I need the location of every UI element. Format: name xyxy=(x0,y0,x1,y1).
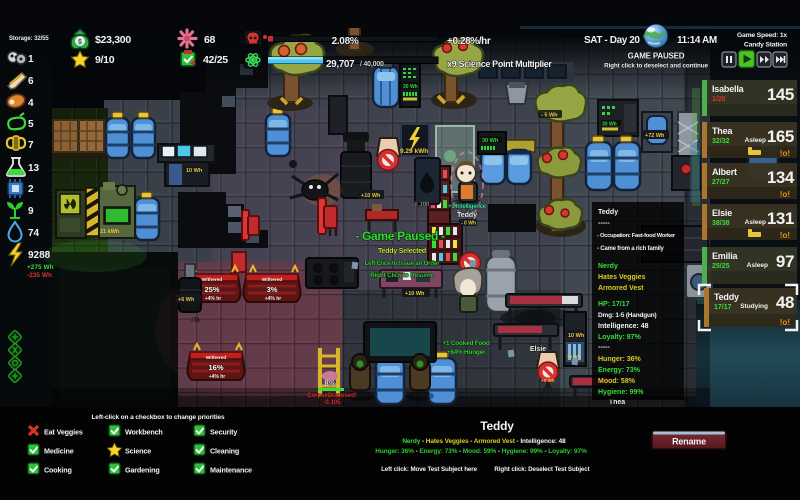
svg-text:HP: 17/17: HP: 17/17 xyxy=(598,301,630,308)
svg-text:Energy: 73%: Energy: 73% xyxy=(598,367,641,374)
svg-text:68: 68 xyxy=(204,34,216,46)
svg-text:32/32: 32/32 xyxy=(712,138,730,145)
svg-text:10 Wh: 10 Wh xyxy=(568,333,585,339)
svg-text:Hygiene: 99%: Hygiene: 99% xyxy=(598,389,644,396)
svg-text:134: 134 xyxy=(767,168,795,187)
svg-text:Hunger: 36%: Hunger: 36% xyxy=(598,356,642,363)
svg-text:Cleaning: Cleaning xyxy=(210,447,239,456)
svg-text:+10 Wh: +10 Wh xyxy=(361,193,381,199)
svg-text:-----: ----- xyxy=(598,344,610,351)
svg-text:42/25: 42/25 xyxy=(203,54,228,66)
svg-text:Teddy: Teddy xyxy=(457,212,477,219)
svg-text:Right Click to Resume: Right Click to Resume xyxy=(370,272,434,279)
svg-text:/ 40,000: / 40,000 xyxy=(360,61,384,68)
svg-text:-0.105: -0.105 xyxy=(323,400,341,406)
svg-text:9: 9 xyxy=(28,206,34,217)
svg-text:Emilia: Emilia xyxy=(712,251,739,261)
svg-text:- 5 Wh: - 5 Wh xyxy=(541,113,558,119)
svg-text:Teddy: Teddy xyxy=(714,292,739,302)
svg-text:1: 1 xyxy=(28,54,34,65)
svg-text:Left Click to Issue an Order: Left Click to Issue an Order xyxy=(365,260,441,267)
svg-text:+72 Wh: +72 Wh xyxy=(645,133,665,139)
svg-text:Studying: Studying xyxy=(740,303,768,310)
svg-text:- Occupation: Fast-food Worker: - Occupation: Fast-food Worker xyxy=(597,233,676,239)
svg-text:25%: 25% xyxy=(204,285,219,294)
svg-text:165: 165 xyxy=(767,127,794,146)
svg-text:30 Wh: 30 Wh xyxy=(403,84,418,90)
svg-text:Right click: Deselect Test Sub: Right click: Deselect Test Subject xyxy=(494,466,589,473)
svg-text:27/27: 27/27 xyxy=(712,179,730,186)
svg-text:- 0 Wh: - 0 Wh xyxy=(461,221,476,227)
svg-text:30 Wh: 30 Wh xyxy=(602,122,617,128)
svg-text:Medicine: Medicine xyxy=(44,447,74,456)
svg-text:Teddy: Teddy xyxy=(598,209,618,216)
svg-text:+275 Wh: +275 Wh xyxy=(27,264,54,271)
svg-text:29,707: 29,707 xyxy=(326,59,355,70)
svg-text:Elsie: Elsie xyxy=(712,208,732,218)
svg-text:Maintenance: Maintenance xyxy=(210,466,252,475)
svg-text:5: 5 xyxy=(28,119,34,130)
svg-text:74: 74 xyxy=(28,228,40,239)
svg-text:145: 145 xyxy=(767,85,794,104)
svg-text:Asleep: Asleep xyxy=(745,137,766,144)
svg-text:Withered: Withered xyxy=(206,355,227,361)
svg-text:!o!: !o! xyxy=(780,231,790,240)
svg-text:+4% hr: +4% hr xyxy=(265,296,282,302)
svg-text:!o!: !o! xyxy=(780,190,790,199)
svg-text:16%: 16% xyxy=(208,363,223,372)
svg-text:- Came from a rich family: - Came from a rich family xyxy=(597,246,665,252)
svg-text:3%: 3% xyxy=(191,318,200,324)
svg-text:1/20: 1/20 xyxy=(712,96,726,103)
svg-text:Security: Security xyxy=(210,428,237,437)
svg-text:25/25: 25/25 xyxy=(712,263,730,270)
svg-text:7: 7 xyxy=(28,140,34,151)
svg-text:Withered: Withered xyxy=(262,277,283,283)
svg-text:+0.28%/hr: +0.28%/hr xyxy=(447,36,491,47)
svg-text:Gardening: Gardening xyxy=(125,466,160,475)
svg-text:+64% Hunger: +64% Hunger xyxy=(447,349,486,356)
svg-text:Mood: 58%: Mood: 58% xyxy=(598,378,636,385)
svg-text:-----: ----- xyxy=(598,220,610,227)
svg-text:- Game Paused -: - Game Paused - xyxy=(355,229,445,243)
svg-text:Asleep: Asleep xyxy=(747,262,768,269)
svg-text:38/38: 38/38 xyxy=(712,220,730,227)
svg-text:Loyalty: 97%: Loyalty: 97% xyxy=(598,334,642,341)
svg-text:+4% hr: +4% hr xyxy=(205,296,222,302)
svg-text:2: 2 xyxy=(28,184,34,195)
svg-text:+4% hr: +4% hr xyxy=(209,374,226,380)
svg-text:Eat Veggies: Eat Veggies xyxy=(44,428,83,437)
svg-text:!o!: !o! xyxy=(780,149,790,158)
svg-text:Storage: 32/55: Storage: 32/55 xyxy=(9,36,49,42)
svg-text:30 Wh: 30 Wh xyxy=(482,138,499,144)
svg-text:GAME PAUSED: GAME PAUSED xyxy=(628,52,685,61)
svg-text:Asleep: Asleep xyxy=(745,219,766,226)
svg-text:Dmg: 1-5 (Handgun): Dmg: 1-5 (Handgun) xyxy=(598,312,657,319)
svg-text:+6 Wh: +6 Wh xyxy=(178,297,195,303)
svg-text:Thea: Thea xyxy=(609,399,625,406)
svg-text:Rename: Rename xyxy=(672,437,706,447)
svg-text:3%: 3% xyxy=(267,285,278,294)
svg-text:+1 Intelligence: +1 Intelligence xyxy=(448,204,487,210)
svg-text:CorpseDisposed!: CorpseDisposed! xyxy=(307,393,357,399)
svg-text:Hates Veggies: Hates Veggies xyxy=(598,274,646,281)
svg-text:x9 Science Point Multiplier: x9 Science Point Multiplier xyxy=(447,59,552,69)
svg-text:4: 4 xyxy=(28,98,34,109)
svg-text:Hunger: 36% - Energy: 73% - Mo: Hunger: 36% - Energy: 73% - Mood: 59% - … xyxy=(375,448,587,455)
svg-text:Withered: Withered xyxy=(202,277,223,283)
svg-text:10 Wh: 10 Wh xyxy=(186,168,203,174)
svg-text:SAT - Day 20: SAT - Day 20 xyxy=(584,35,640,46)
svg-text:2.08%: 2.08% xyxy=(332,36,359,47)
svg-text:$23,300: $23,300 xyxy=(95,34,131,46)
svg-text:+1 Cooked Food: +1 Cooked Food xyxy=(442,340,490,347)
svg-text:9.29 kWh: 9.29 kWh xyxy=(400,148,428,155)
svg-text:Teddy Selected: Teddy Selected xyxy=(378,248,426,255)
svg-text:!o!: !o! xyxy=(780,318,790,327)
svg-text:9288: 9288 xyxy=(28,250,51,261)
svg-text:Workbench: Workbench xyxy=(125,428,163,437)
svg-text:Left click: Move Test Subject: Left click: Move Test Subject here xyxy=(381,466,478,473)
svg-text:Candy Station: Candy Station xyxy=(744,42,787,49)
svg-text:11:14 AM: 11:14 AM xyxy=(677,35,717,46)
svg-text:Nerdy - Hates Veggies - Armore: Nerdy - Hates Veggies - Armored Vest - I… xyxy=(402,438,566,445)
svg-text:6: 6 xyxy=(28,76,34,87)
svg-text:+10 Wh: +10 Wh xyxy=(405,291,425,297)
svg-text:Science: Science xyxy=(125,447,151,456)
svg-text:Right click to deselect and co: Right click to deselect and continue xyxy=(604,63,708,70)
svg-text:Armored Vest: Armored Vest xyxy=(598,285,644,292)
svg-text:-235 Wh: -235 Wh xyxy=(27,272,52,279)
svg-text:Thea: Thea xyxy=(712,126,733,136)
svg-text:Intelligence: 48: Intelligence: 48 xyxy=(598,323,649,330)
svg-text:Isabella: Isabella xyxy=(712,84,745,94)
svg-text:Nerdy: Nerdy xyxy=(598,263,618,270)
svg-text:Albert: Albert xyxy=(712,167,737,177)
svg-text:97: 97 xyxy=(776,252,794,271)
svg-text:Game Speed: 1x: Game Speed: 1x xyxy=(737,32,788,39)
svg-text:Cooking: Cooking xyxy=(44,466,72,475)
svg-text:76,100: 76,100 xyxy=(411,202,430,208)
svg-text:13: 13 xyxy=(28,163,40,174)
svg-text:131: 131 xyxy=(767,209,794,228)
svg-text:Teddy: Teddy xyxy=(480,419,514,433)
svg-text:21 kWh: 21 kWh xyxy=(100,229,120,235)
svg-text:+0 Wh: +0 Wh xyxy=(541,378,555,383)
svg-text:9/10: 9/10 xyxy=(95,54,115,66)
svg-text:$: $ xyxy=(78,39,82,46)
svg-text:48: 48 xyxy=(776,293,794,312)
svg-text:Left-click on a checkbox to ch: Left-click on a checkbox to change prior… xyxy=(91,414,225,421)
svg-text:17/17: 17/17 xyxy=(714,304,732,311)
